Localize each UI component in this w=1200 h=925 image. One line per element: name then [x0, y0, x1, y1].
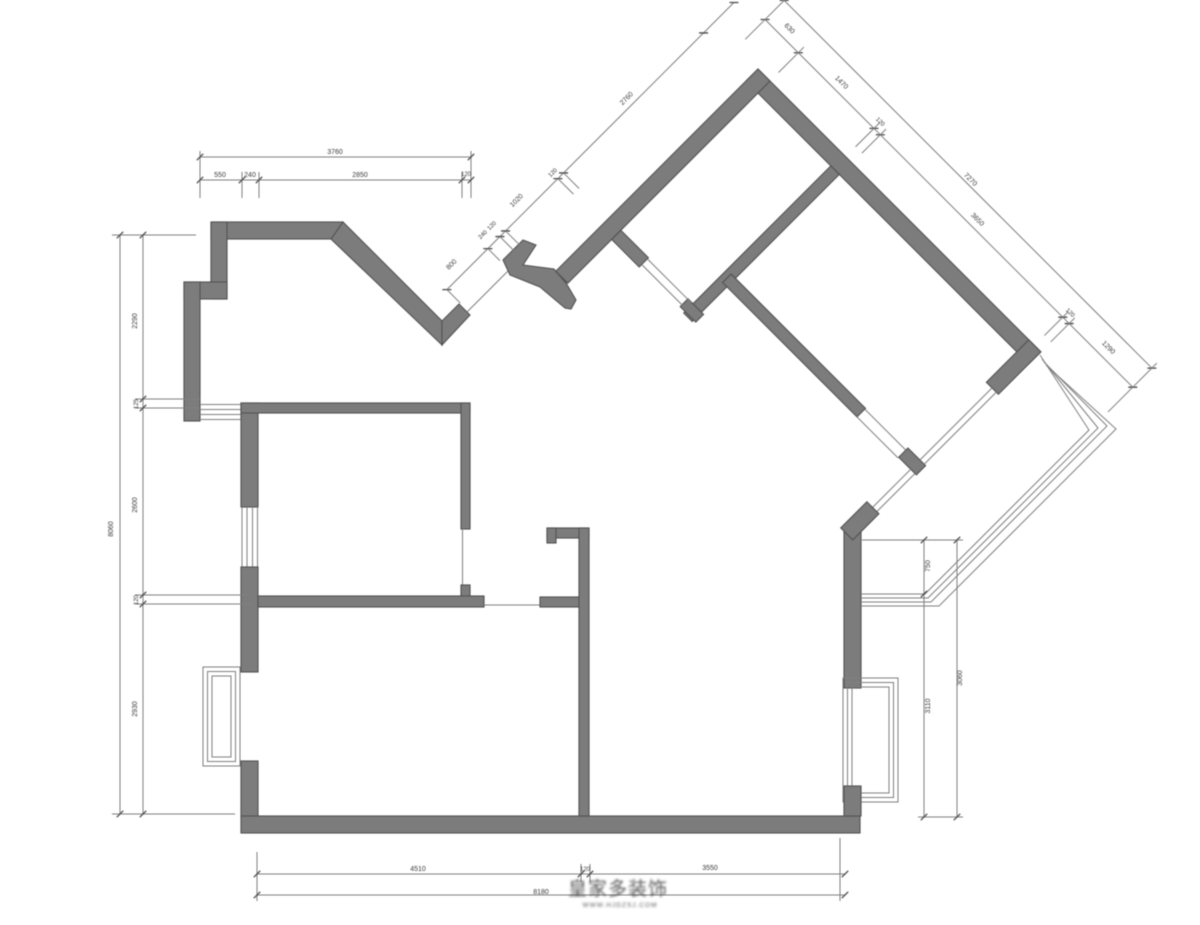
- svg-text:550: 550: [214, 172, 226, 179]
- svg-text:8180: 8180: [533, 889, 549, 896]
- svg-text:240: 240: [244, 172, 256, 179]
- svg-text:3110: 3110: [925, 698, 932, 713]
- svg-text:2600: 2600: [132, 497, 139, 513]
- svg-text:皇家多装饰: 皇家多装饰: [568, 878, 668, 900]
- svg-text:120: 120: [580, 867, 591, 873]
- svg-text:120: 120: [134, 594, 140, 605]
- svg-text:8060: 8060: [108, 521, 115, 537]
- svg-text:3760: 3760: [327, 149, 343, 156]
- svg-text:3060: 3060: [957, 670, 964, 686]
- svg-text:3550: 3550: [702, 865, 718, 872]
- svg-text:120: 120: [461, 172, 472, 178]
- svg-text:2850: 2850: [352, 172, 368, 179]
- svg-text:2930: 2930: [132, 701, 139, 717]
- svg-text:2290: 2290: [132, 313, 139, 329]
- svg-text:4510: 4510: [410, 866, 426, 873]
- svg-text:WWW.HJDZSJ.COM: WWW.HJDZSJ.COM: [582, 902, 657, 909]
- svg-text:750: 750: [925, 560, 932, 572]
- svg-text:125: 125: [134, 398, 140, 409]
